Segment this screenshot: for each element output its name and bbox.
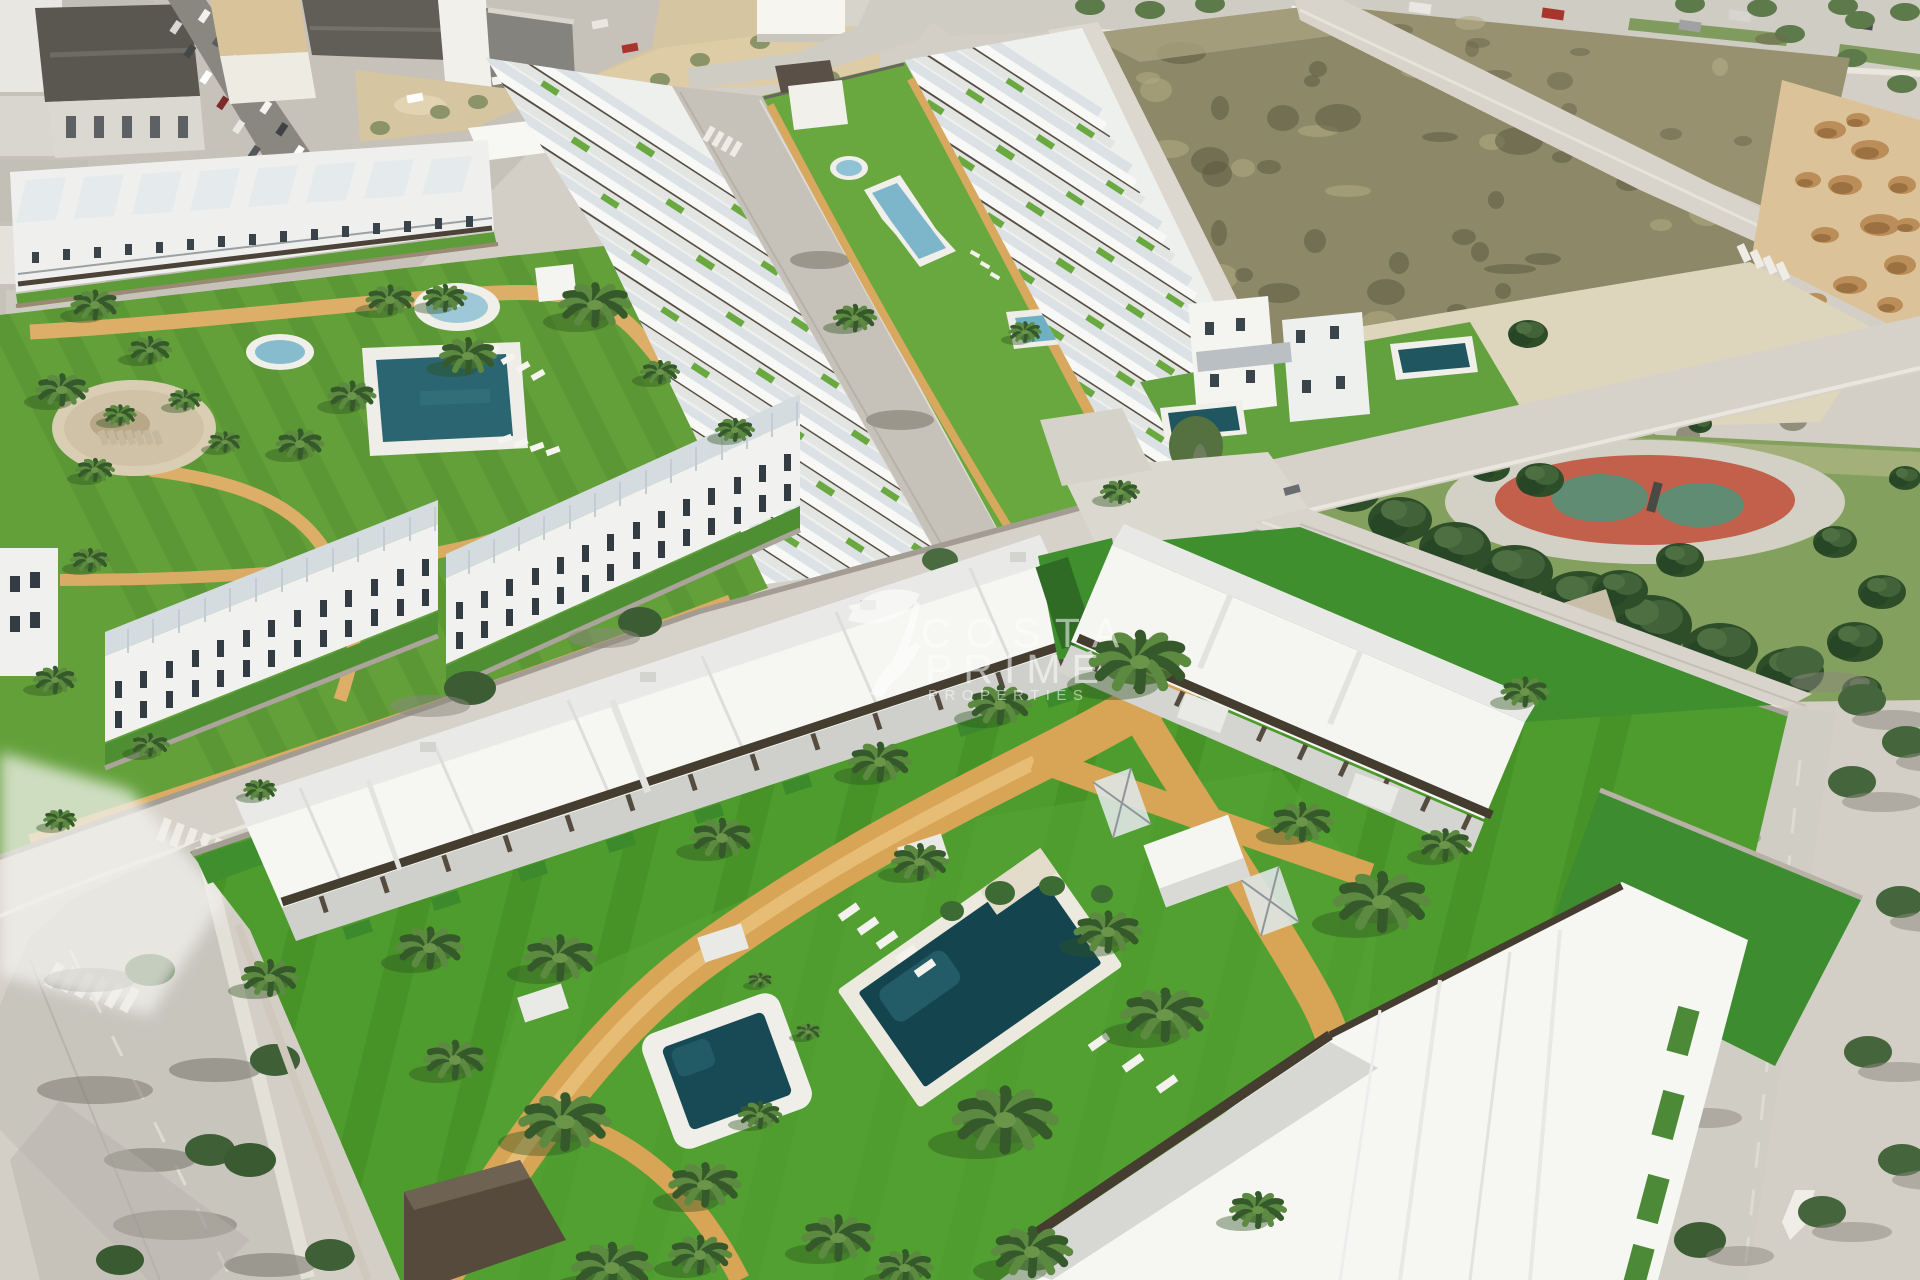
svg-text:PRIME: PRIME <box>925 646 1110 692</box>
svg-text:PROPERTIES: PROPERTIES <box>928 687 1089 704</box>
